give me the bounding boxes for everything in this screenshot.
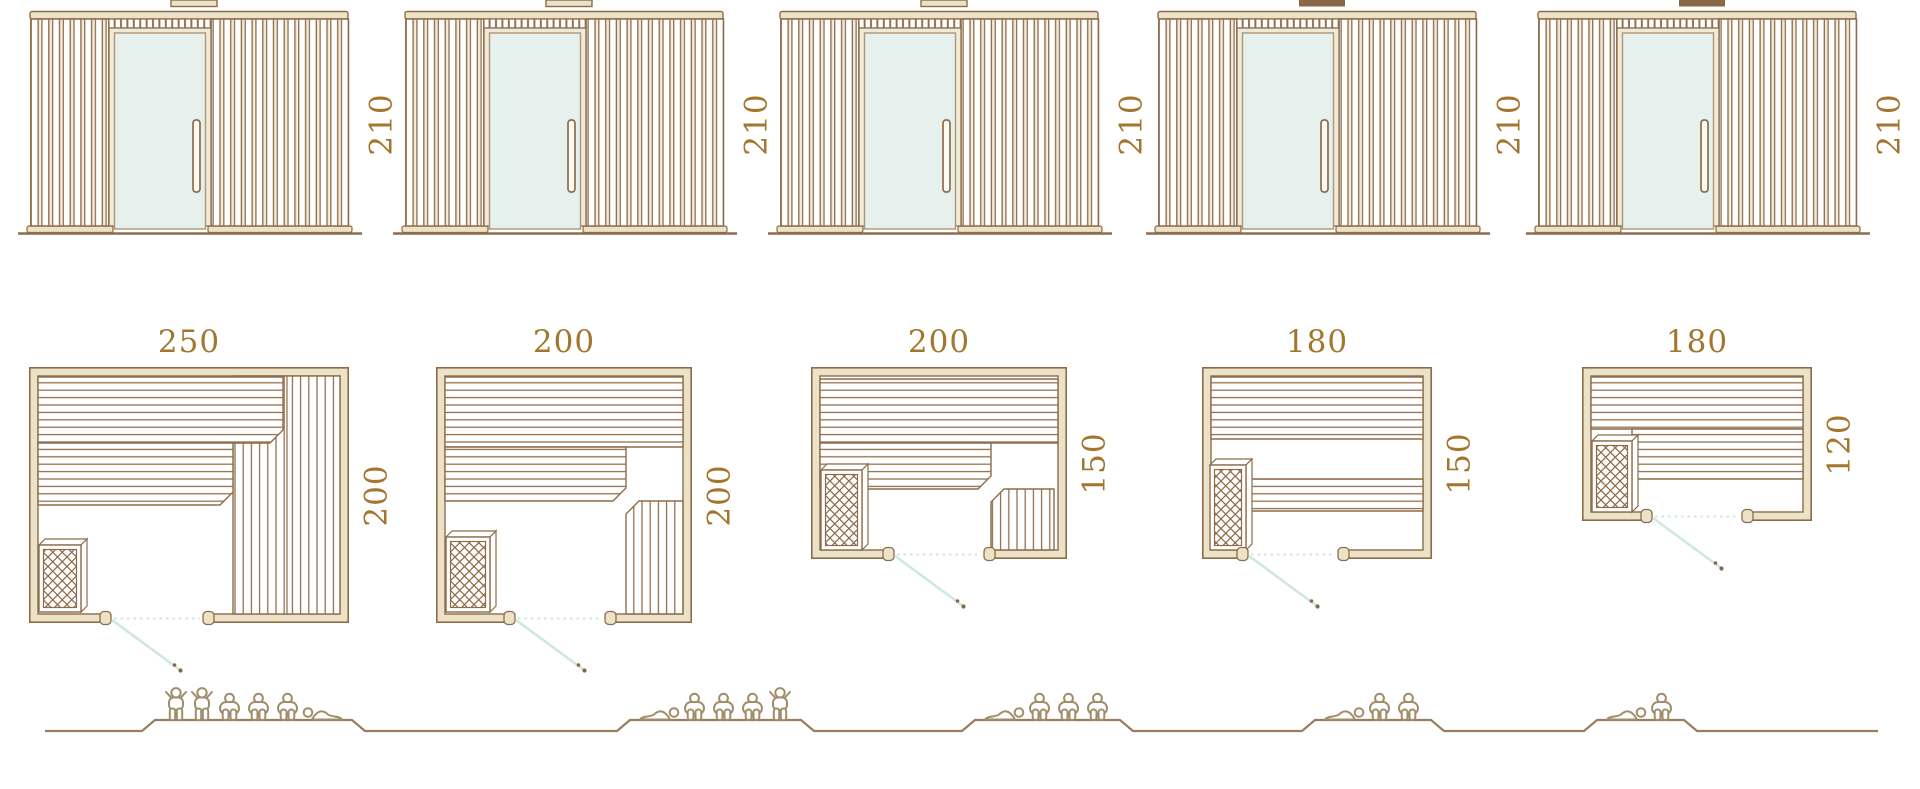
elevation-drawing [1146, 0, 1490, 240]
slat-wall-right [211, 19, 349, 226]
door-handle [1321, 120, 1328, 192]
elevation-drawing [393, 0, 737, 240]
door-opening [1652, 511, 1742, 523]
bench [1632, 429, 1803, 479]
person-lying-icon [304, 708, 313, 717]
heater-side [81, 539, 87, 612]
height-dimension-label: 210 [1488, 58, 1532, 190]
heater-lid [1592, 435, 1638, 441]
glass-door [1623, 33, 1714, 229]
swing-handle-dot [956, 599, 960, 603]
glass-door [865, 33, 956, 229]
plan-interior [38, 376, 340, 614]
door-handle [193, 120, 200, 192]
sauna-front-elevation [393, 0, 737, 240]
depth-dimension-label: 150 [1438, 397, 1482, 529]
heater-grid [1597, 446, 1628, 508]
person-standing-icon [197, 688, 206, 697]
vent-grille [1617, 19, 1719, 28]
plan-interior [1591, 376, 1803, 512]
bench [445, 377, 683, 447]
slat-wall-left [406, 19, 484, 226]
glass-door [1243, 33, 1334, 229]
slat-wall-left [31, 19, 109, 226]
door-swing-line [1653, 518, 1721, 568]
slat-wall-right [1339, 19, 1477, 226]
heater-grid [1215, 470, 1242, 546]
heater-lid [1210, 459, 1252, 465]
width-dimension-label: 200 [811, 327, 1067, 358]
roof-vent [546, 0, 592, 7]
swing-handle-dot [1315, 604, 1319, 608]
heater-grid [826, 475, 858, 546]
plan-interior [1211, 376, 1423, 550]
bench [445, 447, 626, 501]
door-frame [859, 28, 961, 226]
person-lying-icon [670, 708, 679, 717]
slat-wall-right [961, 19, 1099, 226]
door-jamb-left [100, 612, 111, 625]
depth-dimension-label: 120 [1818, 378, 1862, 510]
door-frame [109, 28, 211, 226]
swing-handle-dot [1714, 561, 1718, 565]
heater-lid [821, 464, 868, 470]
elevation-drawing [18, 0, 362, 240]
bench [38, 443, 233, 505]
heater-side [862, 464, 868, 550]
top-beam [30, 12, 348, 20]
heater-frame [446, 537, 490, 612]
roof-vent [171, 0, 217, 7]
top-beam [780, 12, 1098, 20]
door-frame [1237, 28, 1339, 226]
slat-wall-left [781, 19, 859, 226]
plan-walls [30, 368, 348, 622]
plan-drawing [811, 367, 1067, 621]
bench [1591, 377, 1803, 429]
door-jamb-left [883, 548, 894, 561]
slat-wall-left [1159, 19, 1237, 226]
sauna-floor-plan [811, 367, 1067, 621]
vent-grille [484, 19, 586, 28]
bench [38, 377, 283, 443]
heater-frame [821, 470, 862, 550]
glass-door [115, 33, 206, 229]
top-beam [405, 12, 723, 20]
heater-side [1632, 435, 1638, 512]
plan-drawing [436, 367, 692, 685]
heater-side [490, 531, 496, 612]
height-dimension-label: 210 [1110, 58, 1154, 190]
plan-walls [812, 368, 1066, 558]
door-jamb-left [1237, 548, 1248, 561]
door-jamb-left [504, 612, 515, 625]
door-opening [894, 549, 984, 561]
bench [820, 443, 991, 489]
elevation-drawing [768, 0, 1112, 240]
plan-walls [437, 368, 691, 622]
bench [1211, 377, 1423, 439]
plan-drawing [1202, 367, 1432, 621]
depth-dimension-label: 200 [355, 429, 399, 561]
wall-plinth [402, 226, 488, 233]
door-handle [568, 120, 575, 192]
person-lying-icon [1015, 708, 1024, 717]
heater-frame [39, 545, 81, 612]
wall-plinth [1336, 226, 1480, 233]
door-jamb-left [1641, 510, 1652, 523]
sauna-floor-plan [1202, 367, 1432, 621]
bench [1250, 479, 1423, 511]
heater-lid [39, 539, 87, 545]
step-bench [991, 489, 1054, 550]
slat-wall-right [1719, 19, 1857, 226]
ground-profile-line [45, 720, 1878, 731]
plan-interior [820, 376, 1058, 550]
heater-grid [451, 542, 486, 608]
capacity-figures-drawing [0, 658, 1920, 762]
elevation-drawing [1526, 0, 1870, 240]
sauna-front-elevation [768, 0, 1112, 240]
height-dimension-label: 210 [360, 58, 404, 190]
slat-wall-left [1539, 19, 1617, 226]
step-bench [626, 501, 683, 614]
swing-handle-dot [961, 604, 965, 608]
door-opening [111, 613, 203, 625]
plan-drawing [29, 367, 349, 685]
capacity-figures-row [0, 658, 1920, 762]
side-bench-vertical [233, 376, 340, 614]
wall-plinth [208, 226, 352, 233]
roof-vent [1299, 0, 1345, 7]
person-standing-icon [171, 688, 180, 697]
heater-lid [446, 531, 496, 537]
top-beam [1538, 12, 1856, 20]
sauna-dimension-diagram: 210 250 200 210 200 200 210 200 150 210 … [0, 0, 1920, 789]
heater-side [1246, 459, 1252, 550]
vent-grille [859, 19, 961, 28]
plan-walls [1203, 368, 1431, 558]
wall-plinth [1716, 226, 1860, 233]
swing-handle-dot [1719, 566, 1723, 570]
sauna-front-elevation [18, 0, 362, 240]
wall-plinth [1535, 226, 1621, 233]
door-jamb-right [1338, 548, 1349, 561]
roof-vent [921, 0, 967, 7]
depth-dimension-label: 200 [698, 429, 742, 561]
plan-interior [445, 376, 683, 614]
height-dimension-label: 210 [1868, 58, 1912, 190]
door-swing-line [1249, 556, 1317, 606]
door-swing-line [895, 556, 963, 606]
width-dimension-label: 250 [29, 327, 349, 358]
sauna-floor-plan [436, 367, 692, 685]
glass-door [490, 33, 581, 229]
vent-grille [109, 19, 211, 28]
wall-plinth [958, 226, 1102, 233]
wall-plinth [27, 226, 113, 233]
door-frame [1617, 28, 1719, 226]
wall-plinth [1155, 226, 1241, 233]
heater-frame [1592, 441, 1632, 512]
sauna-floor-plan [1582, 367, 1812, 583]
person-standing-icon [775, 688, 784, 697]
plan-drawing [1582, 367, 1812, 583]
width-dimension-label: 180 [1202, 327, 1432, 358]
plan-walls [1583, 368, 1811, 520]
person-lying-icon [1637, 708, 1646, 717]
door-opening [515, 613, 605, 625]
door-frame [484, 28, 586, 226]
top-beam [1158, 12, 1476, 20]
door-jamb-right [984, 548, 995, 561]
vent-grille [1237, 19, 1339, 28]
slat-wall-right [586, 19, 724, 226]
sauna-front-elevation [1146, 0, 1490, 240]
width-dimension-label: 180 [1582, 327, 1812, 358]
door-jamb-right [1742, 510, 1753, 523]
width-dimension-label: 200 [436, 327, 692, 358]
wall-plinth [583, 226, 727, 233]
sauna-floor-plan [29, 367, 349, 685]
door-jamb-right [605, 612, 616, 625]
depth-dimension-label: 150 [1073, 397, 1117, 529]
sauna-front-elevation [1526, 0, 1870, 240]
heater-grid [44, 550, 77, 608]
person-lying-icon [1355, 708, 1364, 717]
door-handle [943, 120, 950, 192]
roof-vent [1679, 0, 1725, 7]
door-opening [1248, 549, 1338, 561]
heater-frame [1210, 465, 1246, 550]
door-handle [1701, 120, 1708, 192]
bench [820, 379, 1058, 443]
swing-handle-dot [1310, 599, 1314, 603]
height-dimension-label: 210 [735, 58, 779, 190]
wall-plinth [777, 226, 863, 233]
door-jamb-right [203, 612, 214, 625]
